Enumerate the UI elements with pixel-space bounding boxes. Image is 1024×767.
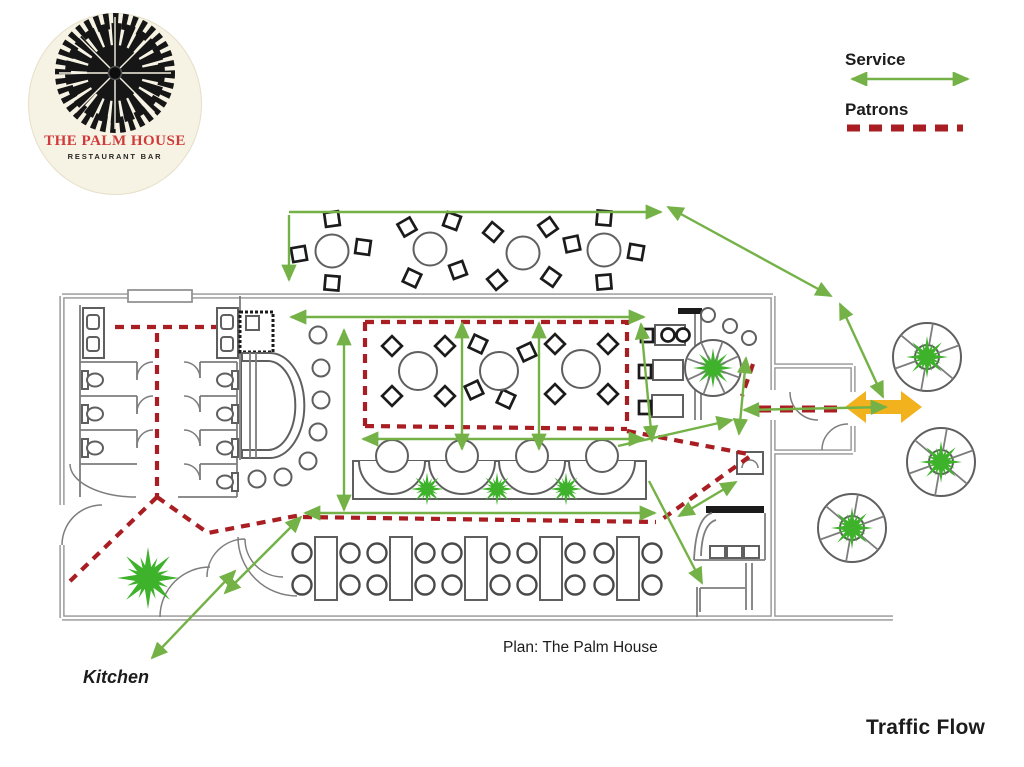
table-icon [315, 537, 337, 600]
floor-plan: Kitchen Plan: The Palm House [0, 0, 1024, 767]
table-icon [465, 537, 487, 600]
sink-icon [221, 315, 233, 329]
service-arrow [840, 304, 883, 397]
outdoor-planters [818, 323, 975, 562]
chair-icon [293, 544, 312, 563]
table-icon [588, 234, 621, 267]
bar-stool [313, 360, 330, 377]
chair-icon [443, 544, 462, 563]
chair-icon [566, 576, 585, 595]
patron-path [627, 431, 748, 454]
terrace-tables [291, 210, 644, 290]
table-icon [540, 537, 562, 600]
chair-icon [518, 576, 537, 595]
plan-caption: Plan: The Palm House [503, 639, 658, 656]
counter-top [678, 308, 702, 314]
counter-bin [710, 546, 725, 558]
bar-stool [275, 469, 292, 486]
chair-icon [341, 576, 360, 595]
chair-icon [643, 576, 662, 595]
hightop-zone [639, 308, 765, 560]
chair-icon [628, 244, 644, 260]
slide-title: Traffic Flow [866, 716, 985, 740]
palm-plant-icon [411, 473, 444, 506]
decor-circle [742, 331, 756, 345]
toilet-icon [82, 371, 103, 389]
chair-icon [443, 576, 462, 595]
chair-icon [491, 576, 510, 595]
patron-path [157, 497, 301, 533]
table-icon [617, 537, 639, 600]
table-icon [414, 233, 447, 266]
palm-plant-icon [831, 507, 873, 549]
table-icon [562, 350, 600, 388]
table-icon [516, 440, 548, 472]
chair-icon [497, 390, 516, 409]
indoor-planter [685, 340, 741, 396]
banquette-booths [353, 440, 646, 505]
chair-icon [566, 544, 585, 563]
bar-stool [310, 424, 327, 441]
chair-icon [382, 336, 402, 356]
chair-icon [403, 269, 422, 288]
decor-circle [723, 319, 737, 333]
counter-bin [744, 546, 759, 558]
interior-walls [80, 296, 752, 617]
table-icon [480, 352, 518, 390]
machine-icon [677, 329, 690, 342]
sink-icon [221, 337, 233, 351]
chair-icon [397, 217, 416, 236]
bar-area [240, 312, 330, 488]
table-icon [316, 235, 349, 268]
chair-icon [595, 576, 614, 595]
hightop-table [652, 395, 683, 417]
bar-stool [249, 471, 266, 488]
service-arrow [152, 571, 235, 658]
chair-icon [293, 576, 312, 595]
decor-circle [701, 308, 715, 322]
chair-icon [596, 274, 611, 289]
table-icon [586, 440, 618, 472]
chair-icon [416, 576, 435, 595]
table-icon [390, 537, 412, 600]
counter-bin [727, 546, 742, 558]
chair-icon [291, 246, 307, 262]
chair-icon [341, 544, 360, 563]
chair-icon [643, 544, 662, 563]
chair-icon [487, 270, 507, 290]
chair-icon [382, 386, 402, 406]
sink-icon [87, 315, 99, 329]
chair-icon [483, 222, 503, 242]
chair-icon [545, 334, 565, 354]
chair-icon [518, 343, 537, 362]
patron-path [303, 517, 656, 522]
pass-counter-top [706, 506, 764, 513]
chair-icon [491, 544, 510, 563]
chair-icon [598, 384, 618, 404]
bar-stool [313, 392, 330, 409]
chair-icon [435, 336, 455, 356]
service-arrow [668, 207, 831, 296]
table-icon [399, 352, 437, 390]
toilet-icon [217, 439, 238, 457]
chair-icon [541, 267, 560, 286]
chair-icon [518, 544, 537, 563]
palm-plant-icon [481, 473, 514, 506]
chair-icon [324, 211, 340, 227]
chair-icon [465, 381, 484, 400]
chair-icon [368, 544, 387, 563]
table-icon [376, 440, 408, 472]
palm-plant-icon [550, 473, 583, 506]
toilet-icon [217, 371, 238, 389]
palm-plant-icon [117, 547, 179, 609]
service-arrow [225, 517, 301, 593]
communal-tables [293, 537, 662, 600]
chair-icon [416, 544, 435, 563]
toilet-icon [82, 405, 103, 423]
chair-icon [449, 261, 467, 279]
chair-icon [564, 236, 581, 253]
toilet-icon [217, 405, 238, 423]
palm-plant-icon [920, 441, 962, 483]
chair-icon [443, 212, 461, 230]
chair-icon [595, 544, 614, 563]
chair-icon [538, 217, 557, 236]
palm-plant-icon [693, 348, 733, 388]
chair-icon [598, 334, 618, 354]
bar-stool [300, 453, 317, 470]
chair-icon [545, 384, 565, 404]
toilet-icon [217, 473, 238, 491]
chair-icon [469, 335, 488, 354]
sink-icon [87, 337, 99, 351]
chair-icon [355, 239, 371, 255]
bar-stool [310, 327, 327, 344]
host-stand [737, 452, 763, 474]
table-icon [507, 237, 540, 270]
kitchen-label: Kitchen [83, 667, 149, 687]
chair-icon [435, 386, 455, 406]
toilet-icon [82, 439, 103, 457]
chair-icon [324, 275, 339, 290]
chair-icon [368, 576, 387, 595]
hightop-table [653, 360, 683, 380]
palm-plant-icon [906, 336, 948, 378]
station-detail [246, 316, 259, 330]
machine-icon [662, 329, 675, 342]
window [128, 290, 192, 302]
dining-tables [382, 334, 618, 408]
